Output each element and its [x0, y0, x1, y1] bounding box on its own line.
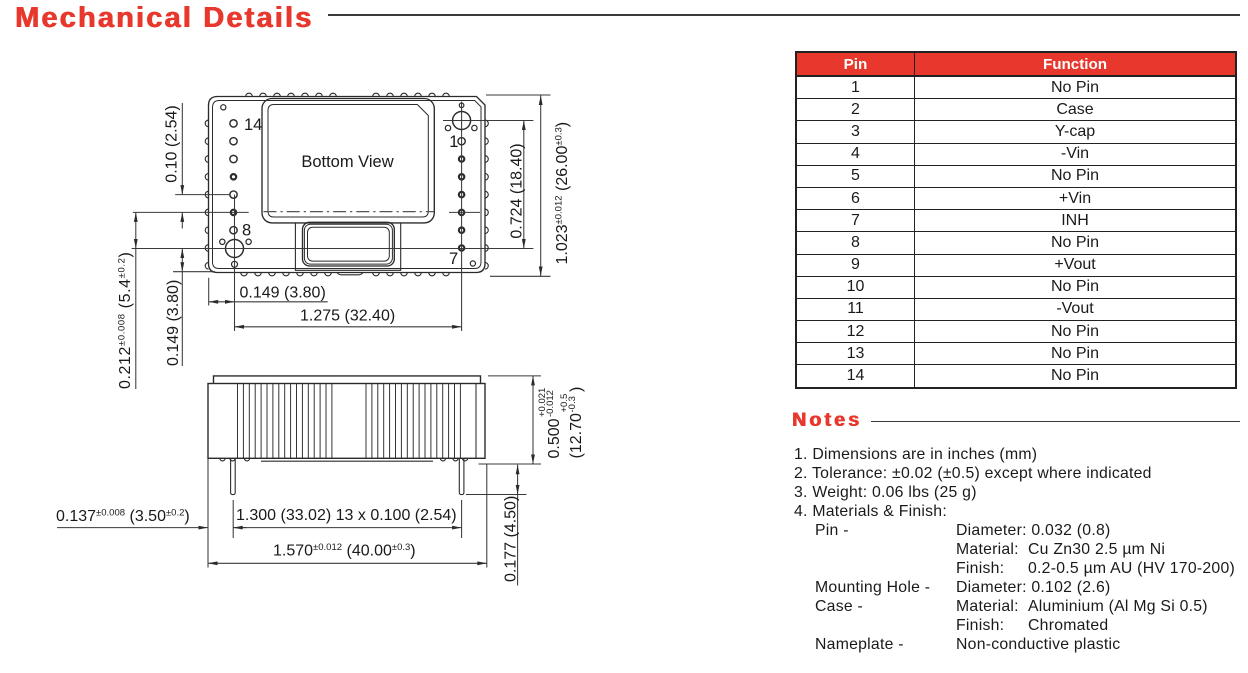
svg-text:(12.70: (12.70: [568, 413, 585, 458]
svg-text:1.275 (32.40): 1.275 (32.40): [300, 307, 395, 324]
svg-text:0.137±0.008 (3.50±0.2): 0.137±0.008 (3.50±0.2): [56, 507, 190, 525]
svg-text:0.500: 0.500: [546, 418, 563, 458]
svg-text:1.300 (33.02) 13 x 0.100 (2.54: 1.300 (33.02) 13 x 0.100 (2.54): [236, 507, 457, 524]
svg-text:0.149 (3.80): 0.149 (3.80): [240, 284, 326, 301]
svg-text:0.724 (18.40): 0.724 (18.40): [509, 143, 526, 238]
svg-text:8: 8: [242, 222, 251, 240]
svg-text:1.570±0.012 (40.00±0.3): 1.570±0.012 (40.00±0.3): [273, 542, 416, 560]
svg-text:0.177 (4.50): 0.177 (4.50): [503, 496, 520, 582]
svg-text:0.10 (2.54): 0.10 (2.54): [164, 105, 181, 182]
svg-text:): ): [568, 387, 585, 392]
svg-text:14: 14: [244, 116, 262, 134]
svg-text:-0.012: -0.012: [545, 390, 556, 417]
svg-text:Bottom View: Bottom View: [301, 153, 393, 171]
svg-text:-0.3: -0.3: [567, 396, 578, 412]
svg-text:1.023±0.012 (26.00±0.3): 1.023±0.012 (26.00±0.3): [554, 122, 572, 265]
svg-text:7: 7: [449, 250, 458, 268]
svg-text:0.212±0.008 (5.4±0.2): 0.212±0.008 (5.4±0.2): [117, 252, 135, 389]
svg-text:0.149 (3.80): 0.149 (3.80): [165, 280, 182, 366]
svg-text:1: 1: [449, 133, 458, 151]
